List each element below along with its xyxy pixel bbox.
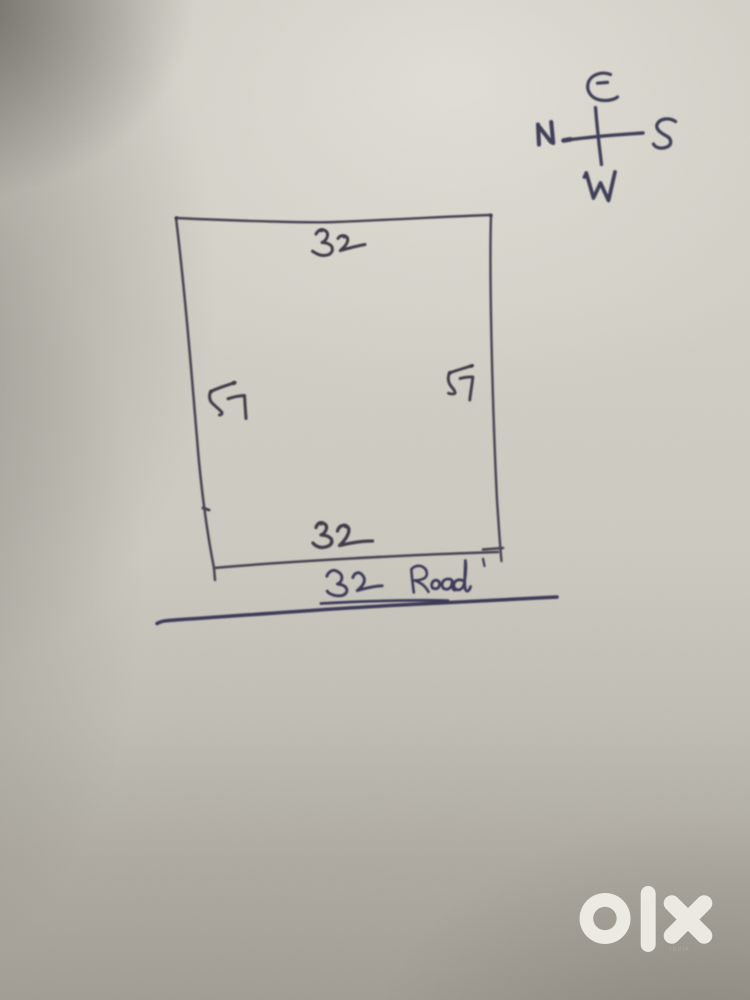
svg-text:I N D I A: I N D I A (670, 947, 689, 953)
